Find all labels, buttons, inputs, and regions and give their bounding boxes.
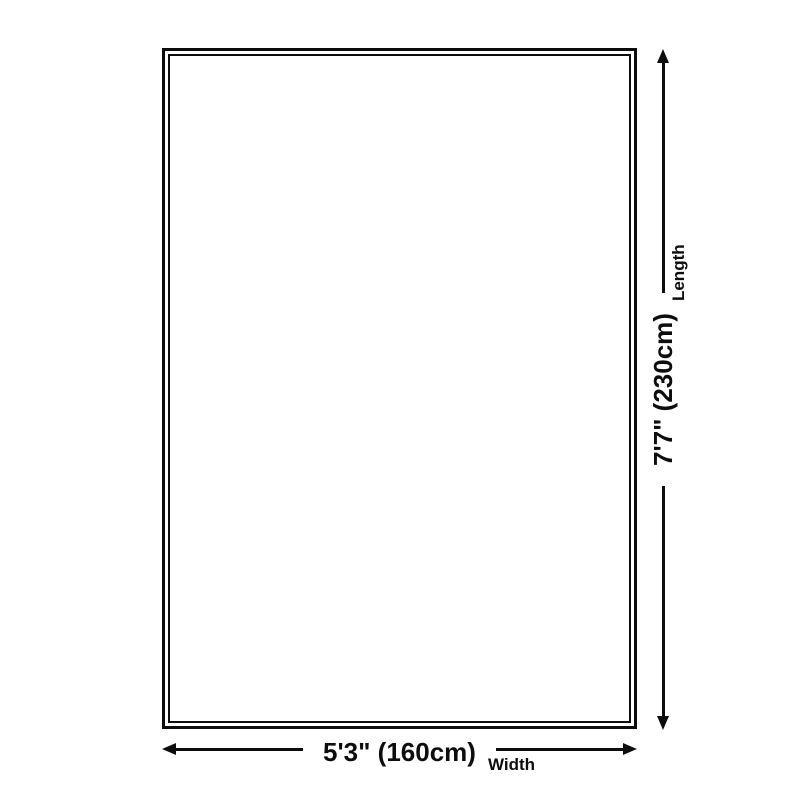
width-value-label: 5'3" (160cm) — [303, 739, 496, 765]
dimension-line-segment — [662, 486, 665, 719]
width-dimension-indicator: 5'3" (160cm) Width — [162, 727, 637, 771]
dimension-line: Length — [641, 49, 685, 293]
length-axis-label: Length — [670, 244, 687, 301]
length-dimension-indicator: 7'7" (230cm) Length — [641, 49, 685, 730]
arrow-up-icon — [657, 49, 669, 63]
arrow-right-icon — [623, 743, 637, 755]
arrow-left-icon — [162, 743, 176, 755]
dimension-line-segment — [662, 60, 665, 293]
length-dimension-arrow: 7'7" (230cm) Length — [641, 49, 685, 730]
product-outline-inner-border — [168, 54, 631, 723]
dimension-diagram: 7'7" (230cm) Length 5'3" (160cm) Width — [0, 0, 800, 800]
dimension-line — [162, 727, 303, 771]
dimension-line: Width — [496, 727, 637, 771]
width-axis-label: Width — [488, 756, 535, 773]
product-outline-outer-border — [162, 48, 637, 729]
dimension-line-segment — [496, 748, 626, 751]
length-value-label: 7'7" (230cm) — [650, 293, 676, 486]
dimension-line — [641, 486, 685, 730]
arrow-down-icon — [657, 716, 669, 730]
dimension-line-segment — [173, 748, 303, 751]
